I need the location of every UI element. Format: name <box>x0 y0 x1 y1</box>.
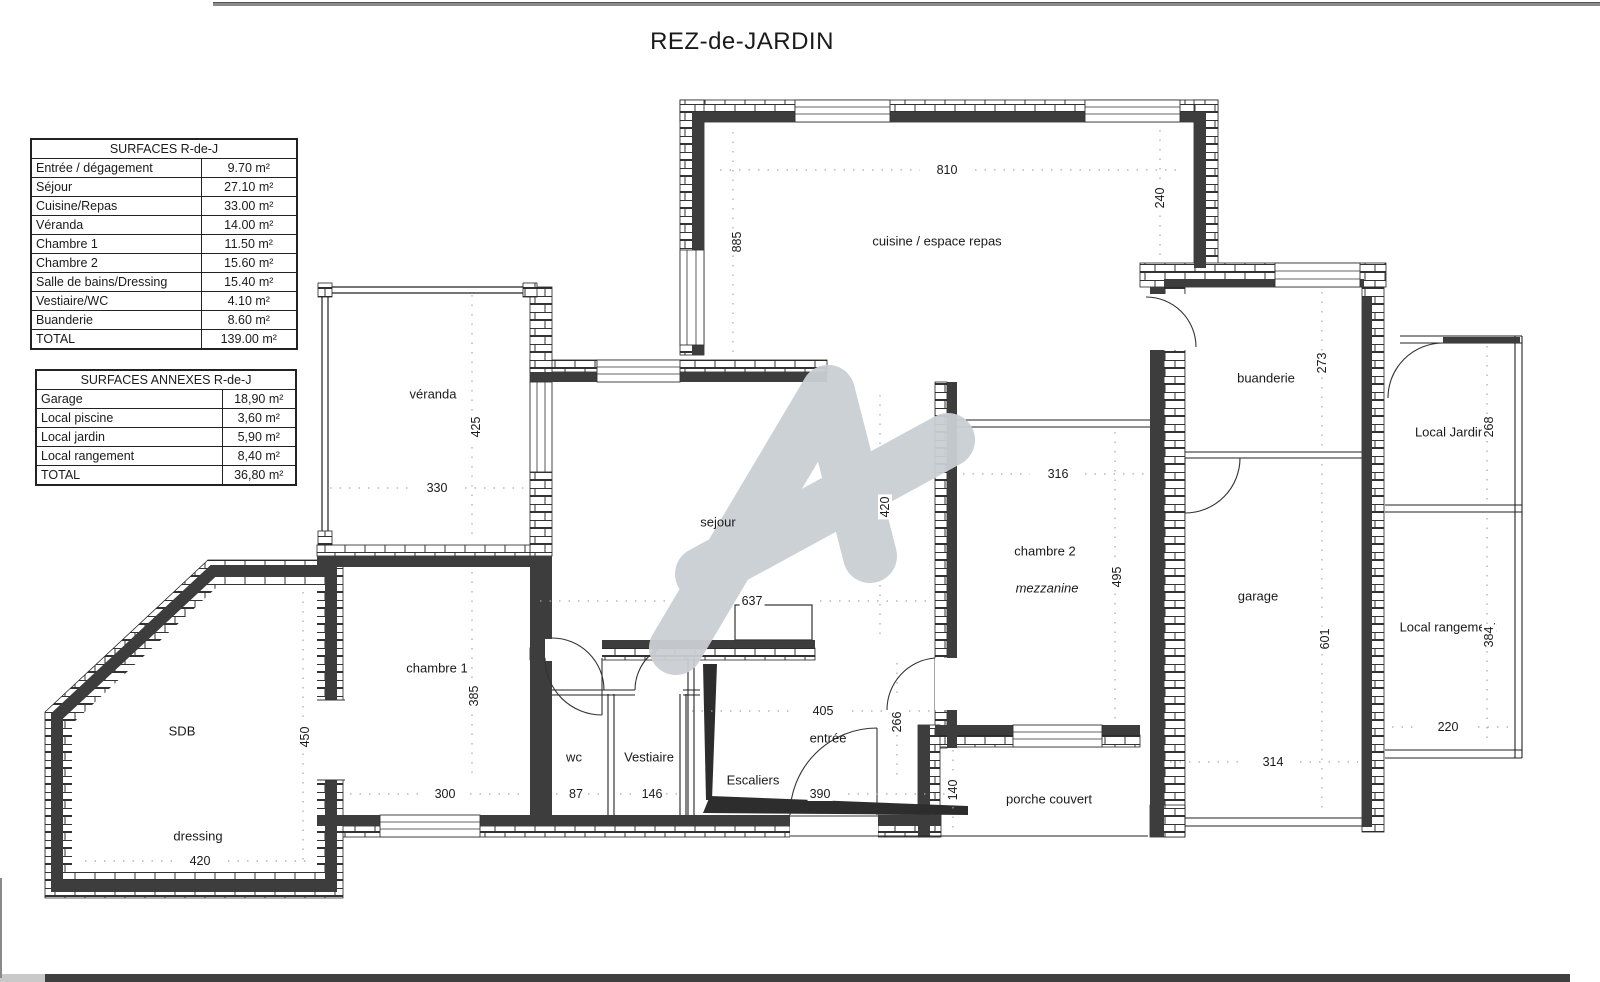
bottom-border-bar <box>0 974 1570 982</box>
dim-garage-height: 601 <box>1318 627 1332 652</box>
table-header-row: SURFACES ANNEXES R-de-J <box>36 370 296 390</box>
dim-wc-width: 87 <box>567 787 585 801</box>
room-label-mezzanine: mezzanine <box>1016 581 1079 596</box>
table-row: Séjour27.10 m² <box>31 178 297 197</box>
room-label-cell: TOTAL <box>36 466 222 486</box>
table-row-total: TOTAL139.00 m² <box>31 330 297 350</box>
room-label-chambre2: chambre 2 <box>1014 544 1075 559</box>
table-row: Buanderie8.60 m² <box>31 311 297 330</box>
dim-garage-width: 314 <box>1261 755 1286 769</box>
annexes-table: SURFACES ANNEXES R-de-J Garage18,90 m² L… <box>35 369 297 486</box>
dim-chambre2-width: 316 <box>1046 467 1071 481</box>
table-row: Véranda14.00 m² <box>31 216 297 235</box>
room-area-cell: 36,80 m² <box>222 466 296 486</box>
dim-local-rangement-height: 384 <box>1482 625 1496 650</box>
dim-entree-height: 266 <box>890 710 904 735</box>
room-area-cell: 15.40 m² <box>201 273 297 292</box>
room-label-escaliers: Escaliers <box>725 773 782 788</box>
room-label-cell: Buanderie <box>31 311 201 330</box>
surfaces-table-title: SURFACES R-de-J <box>31 139 297 159</box>
room-label-chambre1: chambre 1 <box>406 661 467 676</box>
dim-porche-height: 140 <box>946 778 960 803</box>
room-label-cell: Vestiaire/WC <box>31 292 201 311</box>
room-area-cell: 33.00 m² <box>201 197 297 216</box>
dim-escaliers-width: 390 <box>808 787 833 801</box>
dim-chambre1-height: 385 <box>467 684 481 709</box>
room-label-sdb: SDB <box>169 724 196 739</box>
table-row: Entrée / dégagement9.70 m² <box>31 159 297 178</box>
table-row-total: TOTAL36,80 m² <box>36 466 296 486</box>
room-area-cell: 9.70 m² <box>201 159 297 178</box>
room-label-garage: garage <box>1238 589 1278 604</box>
dim-cuisine-width: 810 <box>935 163 960 177</box>
room-label-cell: Local rangement <box>36 447 222 466</box>
room-area-cell: 15.60 m² <box>201 254 297 273</box>
room-area-cell: 8,40 m² <box>222 447 296 466</box>
room-label-cell: Cuisine/Repas <box>31 197 201 216</box>
table-row: Salle de bains/Dressing15.40 m² <box>31 273 297 292</box>
room-area-cell: 8.60 m² <box>201 311 297 330</box>
room-label-sejour: sejour <box>700 515 735 530</box>
room-label-cell: Local jardin <box>36 428 222 447</box>
dim-chambre2-height: 495 <box>1110 565 1124 590</box>
room-label-cell: Garage <box>36 390 222 409</box>
room-label-cuisine: cuisine / espace repas <box>872 234 1001 249</box>
table-row: Local piscine3,60 m² <box>36 409 296 428</box>
room-label-cell: Salle de bains/Dressing <box>31 273 201 292</box>
table-header-row: SURFACES R-de-J <box>31 139 297 159</box>
room-area-cell: 27.10 m² <box>201 178 297 197</box>
room-area-cell: 14.00 m² <box>201 216 297 235</box>
room-label-cell: Chambre 2 <box>31 254 201 273</box>
room-area-cell: 4.10 m² <box>201 292 297 311</box>
table-row: Chambre 215.60 m² <box>31 254 297 273</box>
dim-cuisine-height: 885 <box>730 230 744 255</box>
room-label-dressing: dressing <box>173 829 222 844</box>
room-label-cell: Local piscine <box>36 409 222 428</box>
room-label-cell: TOTAL <box>31 330 201 350</box>
room-label-cell: Entrée / dégagement <box>31 159 201 178</box>
room-label-cell: Séjour <box>31 178 201 197</box>
dim-local-rangement-width: 220 <box>1436 720 1461 734</box>
room-label-cell: Chambre 1 <box>31 235 201 254</box>
dim-dressing-width: 420 <box>188 854 213 868</box>
room-label-veranda: véranda <box>410 387 457 402</box>
table-row: Chambre 111.50 m² <box>31 235 297 254</box>
bottom-left-corner <box>0 974 45 982</box>
table-row: Vestiaire/WC4.10 m² <box>31 292 297 311</box>
dim-sdb-height: 450 <box>298 725 312 750</box>
dim-buanderie-height: 273 <box>1315 351 1329 376</box>
room-area-cell: 11.50 m² <box>201 235 297 254</box>
table-row: Cuisine/Repas33.00 m² <box>31 197 297 216</box>
room-label-buanderie: buanderie <box>1237 371 1295 386</box>
annexes-table-title: SURFACES ANNEXES R-de-J <box>36 370 296 390</box>
dim-veranda-width: 330 <box>425 481 450 495</box>
dim-veranda-height: 425 <box>469 415 483 440</box>
dim-entree-width: 405 <box>811 704 836 718</box>
surfaces-table: SURFACES R-de-J Entrée / dégagement9.70 … <box>30 138 298 350</box>
room-label-wc: wc <box>566 750 582 765</box>
dim-sejour-height: 420 <box>878 495 892 520</box>
room-area-cell: 139.00 m² <box>201 330 297 350</box>
room-area-cell: 5,90 m² <box>222 428 296 447</box>
room-label-porche: porche couvert <box>1006 792 1092 807</box>
dim-cuisine-right-height: 240 <box>1153 186 1167 211</box>
room-label-entree: entrée <box>810 731 847 746</box>
room-area-cell: 3,60 m² <box>222 409 296 428</box>
room-label-vestiaire: Vestiaire <box>624 750 674 765</box>
room-area-cell: 18,90 m² <box>222 390 296 409</box>
left-border-line <box>0 878 2 978</box>
table-row: Local jardin5,90 m² <box>36 428 296 447</box>
dim-chambre1-width: 300 <box>433 787 458 801</box>
dim-vestiaire-width: 146 <box>640 787 665 801</box>
room-label-local-jardin: Local Jardin <box>1415 425 1485 440</box>
dim-sejour-width: 637 <box>740 594 765 608</box>
room-label-cell: Véranda <box>31 216 201 235</box>
floor-plan-page: REZ-de-JARDIN <box>0 0 1600 982</box>
dim-local-jardin-height: 268 <box>1482 415 1496 440</box>
table-row: Local rangement8,40 m² <box>36 447 296 466</box>
table-row: Garage18,90 m² <box>36 390 296 409</box>
